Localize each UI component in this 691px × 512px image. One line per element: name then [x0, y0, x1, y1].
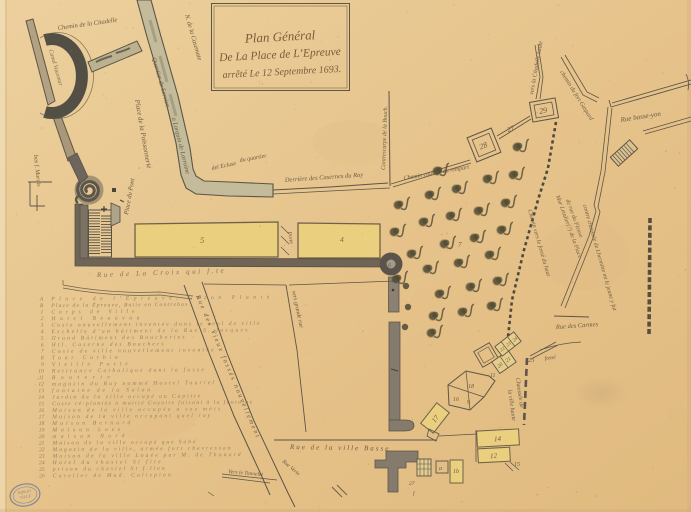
svg-text:18: 18 [468, 384, 474, 390]
svg-text:7: 7 [458, 241, 462, 249]
svg-text:9: 9 [41, 362, 44, 368]
svg-text:25: 25 [39, 467, 45, 473]
svg-text:16: 16 [39, 408, 45, 414]
svg-text:2: 2 [41, 316, 44, 322]
svg-text:11: 11 [490, 373, 496, 379]
svg-text:11: 11 [39, 375, 44, 381]
svg-text:7: 7 [41, 349, 44, 355]
svg-text:12: 12 [38, 382, 44, 388]
svg-text:19: 19 [39, 428, 45, 434]
svg-text:4: 4 [340, 235, 344, 244]
svg-text:13: 13 [38, 388, 44, 394]
svg-text:27: 27 [409, 481, 415, 487]
svg-text:8: 8 [41, 355, 44, 361]
svg-text:23: 23 [39, 454, 45, 460]
svg-text:16: 16 [453, 397, 459, 403]
svg-text:6: 6 [388, 263, 391, 269]
svg-text:5: 5 [200, 235, 204, 245]
svg-text:26: 26 [39, 473, 45, 479]
svg-text:12: 12 [490, 452, 498, 460]
svg-text:6: 6 [41, 342, 44, 348]
svg-text:22: 22 [39, 447, 45, 453]
svg-text:29: 29 [538, 106, 547, 116]
svg-text:20: 20 [39, 434, 45, 440]
svg-text:18: 18 [39, 421, 45, 427]
svg-text:9: 9 [467, 400, 470, 406]
svg-text:5: 5 [41, 336, 44, 342]
svg-text:Retirance Catholique dont la f: Retirance Catholique dont la fosse [51, 366, 205, 374]
svg-text:14: 14 [494, 435, 502, 443]
svg-text:21: 21 [39, 441, 45, 447]
svg-text:17: 17 [39, 414, 45, 420]
svg-text:15: 15 [39, 401, 45, 407]
svg-text:A: A [39, 297, 44, 303]
svg-text:14: 14 [38, 395, 44, 401]
svg-text:25: 25 [528, 357, 535, 364]
svg-text:15: 15 [514, 462, 520, 468]
svg-text:Grand Bâtiment des Boucheries: Grand Bâtiment des Boucheries [52, 335, 185, 342]
svg-text:10: 10 [38, 369, 44, 375]
svg-text:24: 24 [39, 460, 45, 466]
svg-text:4: 4 [41, 329, 44, 335]
svg-text:1: 1 [41, 310, 44, 316]
svg-text:3: 3 [40, 323, 44, 329]
svg-text:1b: 1b [453, 469, 459, 475]
svg-text:a: a [439, 466, 442, 472]
